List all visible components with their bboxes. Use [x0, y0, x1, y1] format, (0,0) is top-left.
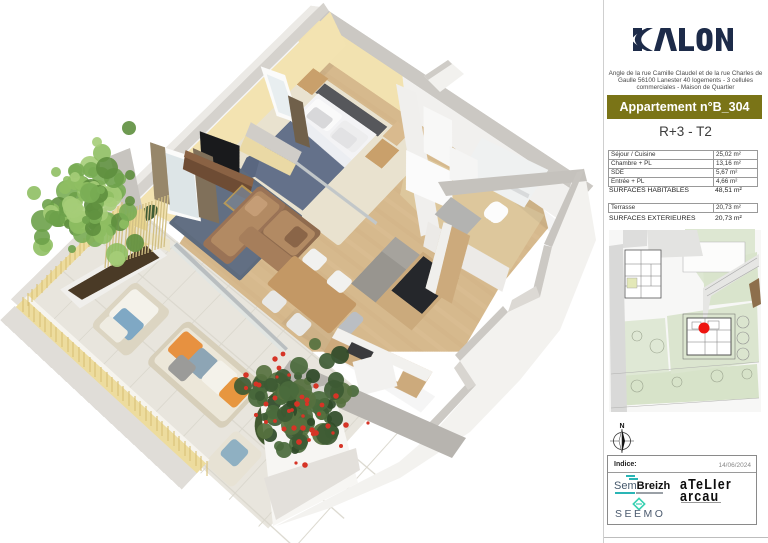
svg-text:N: N [619, 423, 624, 430]
